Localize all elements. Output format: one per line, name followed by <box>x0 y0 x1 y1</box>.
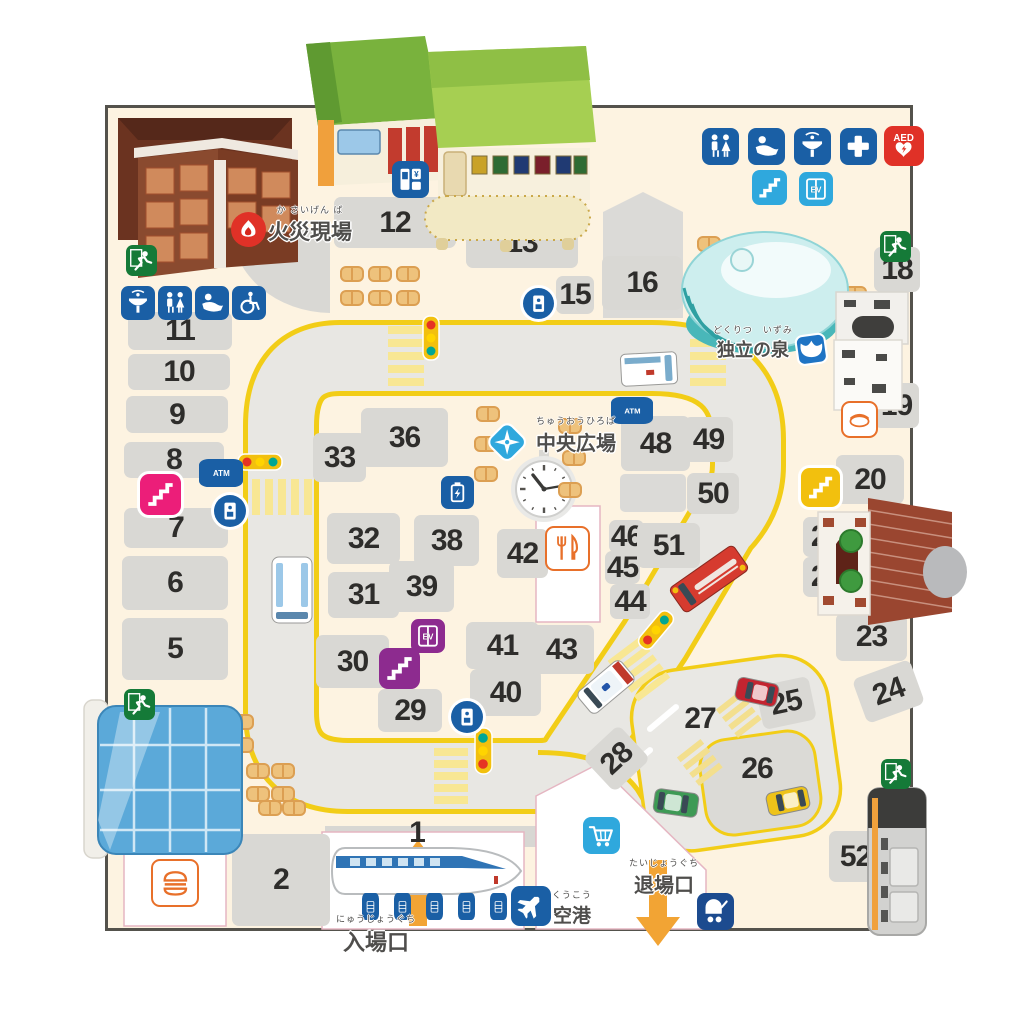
game-board: 1234567891011121315161819202122232425262… <box>0 0 1024 1024</box>
exit-furigana: たいじょうぐち <box>629 856 699 869</box>
plaza-furigana: ちゅうおうひろば <box>536 414 616 427</box>
plaza-text: 中央広場 <box>536 427 616 456</box>
fire-site-label: か さいげん ば 火災現場 <box>268 203 352 246</box>
exit-text: 退場口 <box>629 869 699 898</box>
entrance-text: 入場口 <box>336 925 416 957</box>
airport-text: 空港 <box>552 901 592 928</box>
entrance-furigana: にゅうじょうぐち <box>336 912 416 925</box>
airport-label: くうこう 空港 <box>552 888 592 928</box>
labels-layer: か さいげん ば 火災現場 どくりつ いずみ 独立の泉 ちゅうおうひろば 中央広… <box>0 0 1024 1024</box>
entrance-label: にゅうじょうぐち 入場口 <box>336 912 416 957</box>
fire-site-furigana: か さいげん ば <box>268 203 352 216</box>
fountain-text: 独立の泉 <box>713 336 793 362</box>
fountain-label: どくりつ いずみ 独立の泉 <box>713 323 793 362</box>
fire-site-text: 火災現場 <box>268 216 352 246</box>
exit-label: たいじょうぐち 退場口 <box>629 856 699 898</box>
fountain-furigana: どくりつ いずみ <box>713 323 793 336</box>
plaza-label: ちゅうおうひろば 中央広場 <box>536 414 616 456</box>
airport-furigana: くうこう <box>552 888 592 901</box>
